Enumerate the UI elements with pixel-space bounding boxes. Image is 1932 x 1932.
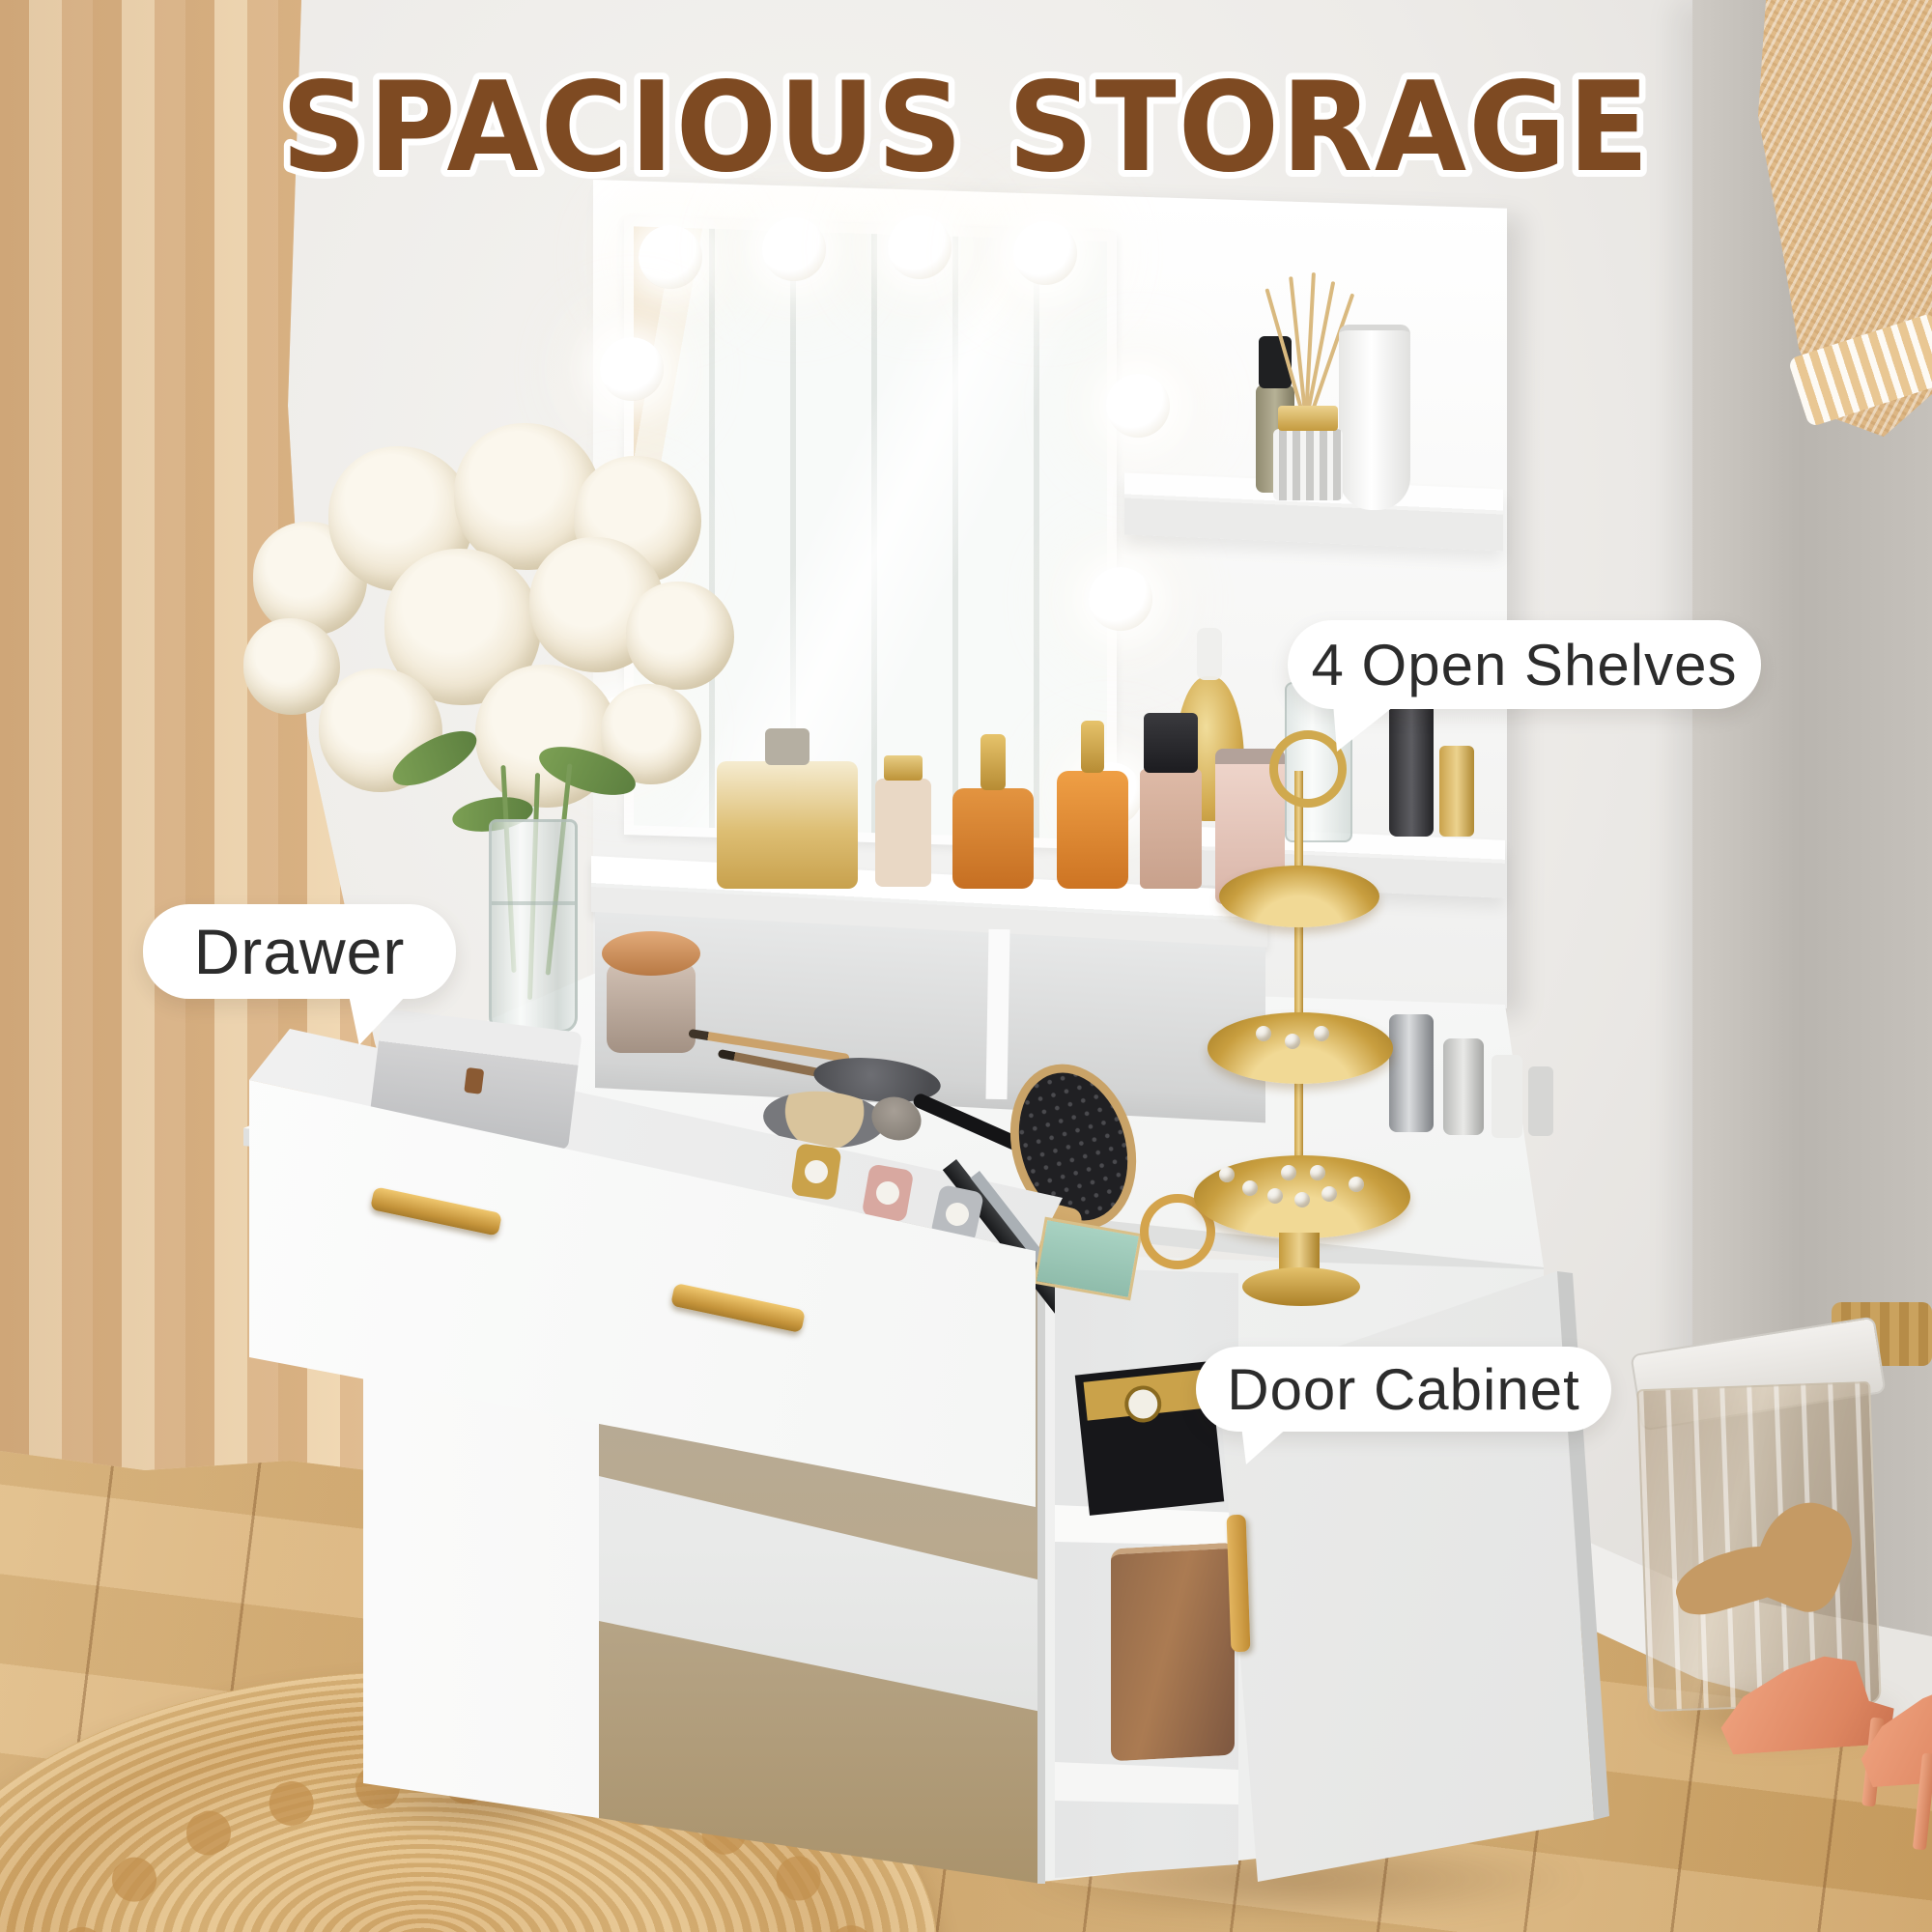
- silver-spray-bottle: [1389, 1014, 1434, 1132]
- tiered-tray-bowl: [1207, 1012, 1393, 1084]
- black-cap-bottle: [1140, 769, 1202, 889]
- tiered-tray-bowl: [1219, 866, 1379, 927]
- callout-drawer-label: Drawer: [194, 915, 406, 988]
- tiered-tray-base: [1242, 1267, 1360, 1306]
- watch: [862, 1163, 915, 1222]
- callout-drawer: Drawer: [143, 904, 456, 999]
- callout-door-cabinet: Door Cabinet: [1196, 1347, 1611, 1432]
- glass-vase: [489, 819, 578, 1033]
- pearl: [1242, 1180, 1258, 1196]
- silver-spray-bottle: [1443, 1038, 1484, 1135]
- pearl: [1321, 1186, 1337, 1202]
- amber-dropper-bottle: [952, 788, 1034, 889]
- brown-storage-bin: [1111, 1543, 1235, 1762]
- pearl: [1349, 1177, 1364, 1192]
- pearl: [1310, 1165, 1325, 1180]
- product-infographic: SPACIOUS STORAGE Drawer 4 Open Shelves D…: [0, 0, 1932, 1932]
- square-perfume-bottle: [717, 761, 858, 889]
- pearl: [1294, 1192, 1310, 1207]
- watch: [790, 1143, 841, 1201]
- callout-open-shelves: 4 Open Shelves: [1288, 620, 1761, 709]
- pearl: [1281, 1165, 1296, 1180]
- page-title: SPACIOUS STORAGE: [281, 56, 1651, 200]
- title-banner: SPACIOUS STORAGE: [0, 27, 1932, 211]
- small-lotion-bottle: [875, 779, 931, 887]
- pearl: [1314, 1026, 1329, 1041]
- tiered-tray-ring: [1269, 730, 1347, 808]
- flower: [626, 582, 734, 690]
- small-vial: [1492, 1055, 1522, 1138]
- small-vial: [1528, 1066, 1553, 1136]
- pearl: [1267, 1188, 1283, 1204]
- callout-door-cabinet-label: Door Cabinet: [1227, 1356, 1580, 1423]
- callout-open-shelves-label: 4 Open Shelves: [1312, 632, 1738, 698]
- pearl: [1285, 1034, 1300, 1049]
- pearl: [1219, 1167, 1235, 1182]
- cream-jar: [607, 962, 696, 1053]
- amber-dropper-bottle: [1057, 771, 1128, 889]
- pearl: [1256, 1026, 1271, 1041]
